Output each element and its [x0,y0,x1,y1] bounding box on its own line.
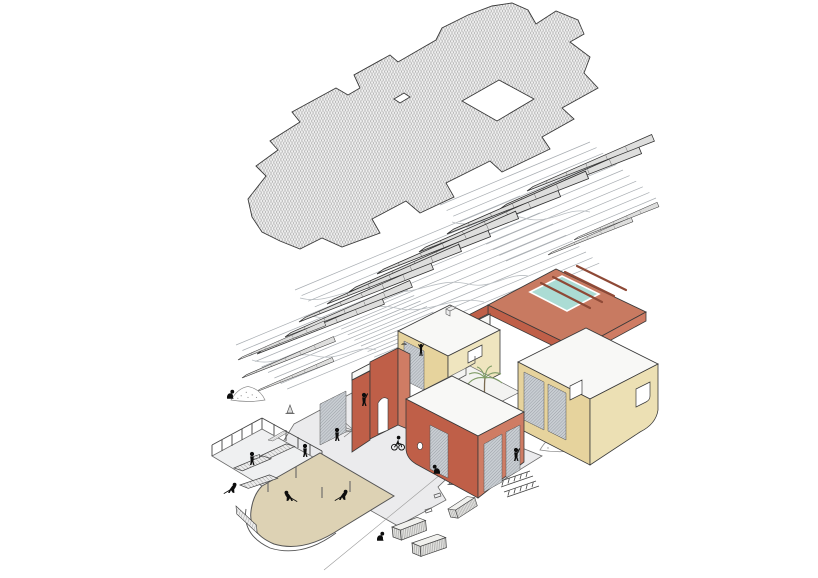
drawing-canvas [0,0,818,578]
roller-door-mesh [484,434,502,492]
site-prop [286,405,295,414]
site-prop [504,481,539,497]
worker-figure [224,483,237,494]
porthole [417,442,422,449]
mesh-screen [548,384,566,440]
roof-hatch-weave [248,3,598,249]
worker-figure [377,532,384,541]
red-parapet-left [352,371,370,452]
site-prop [231,386,265,401]
roof-layer [248,3,598,249]
mesh-screen [524,372,544,430]
roof-truss [547,217,633,256]
roof-truss [375,211,518,277]
arch-opening [378,398,388,434]
site-prop [446,494,479,520]
site-prop [412,534,447,557]
roof-truss [255,357,334,393]
purlin-line [460,159,610,222]
exploded-axonometric-drawing [0,0,818,578]
roof-truss [573,202,659,241]
roof-truss [297,262,433,324]
roof-truss [325,244,461,306]
